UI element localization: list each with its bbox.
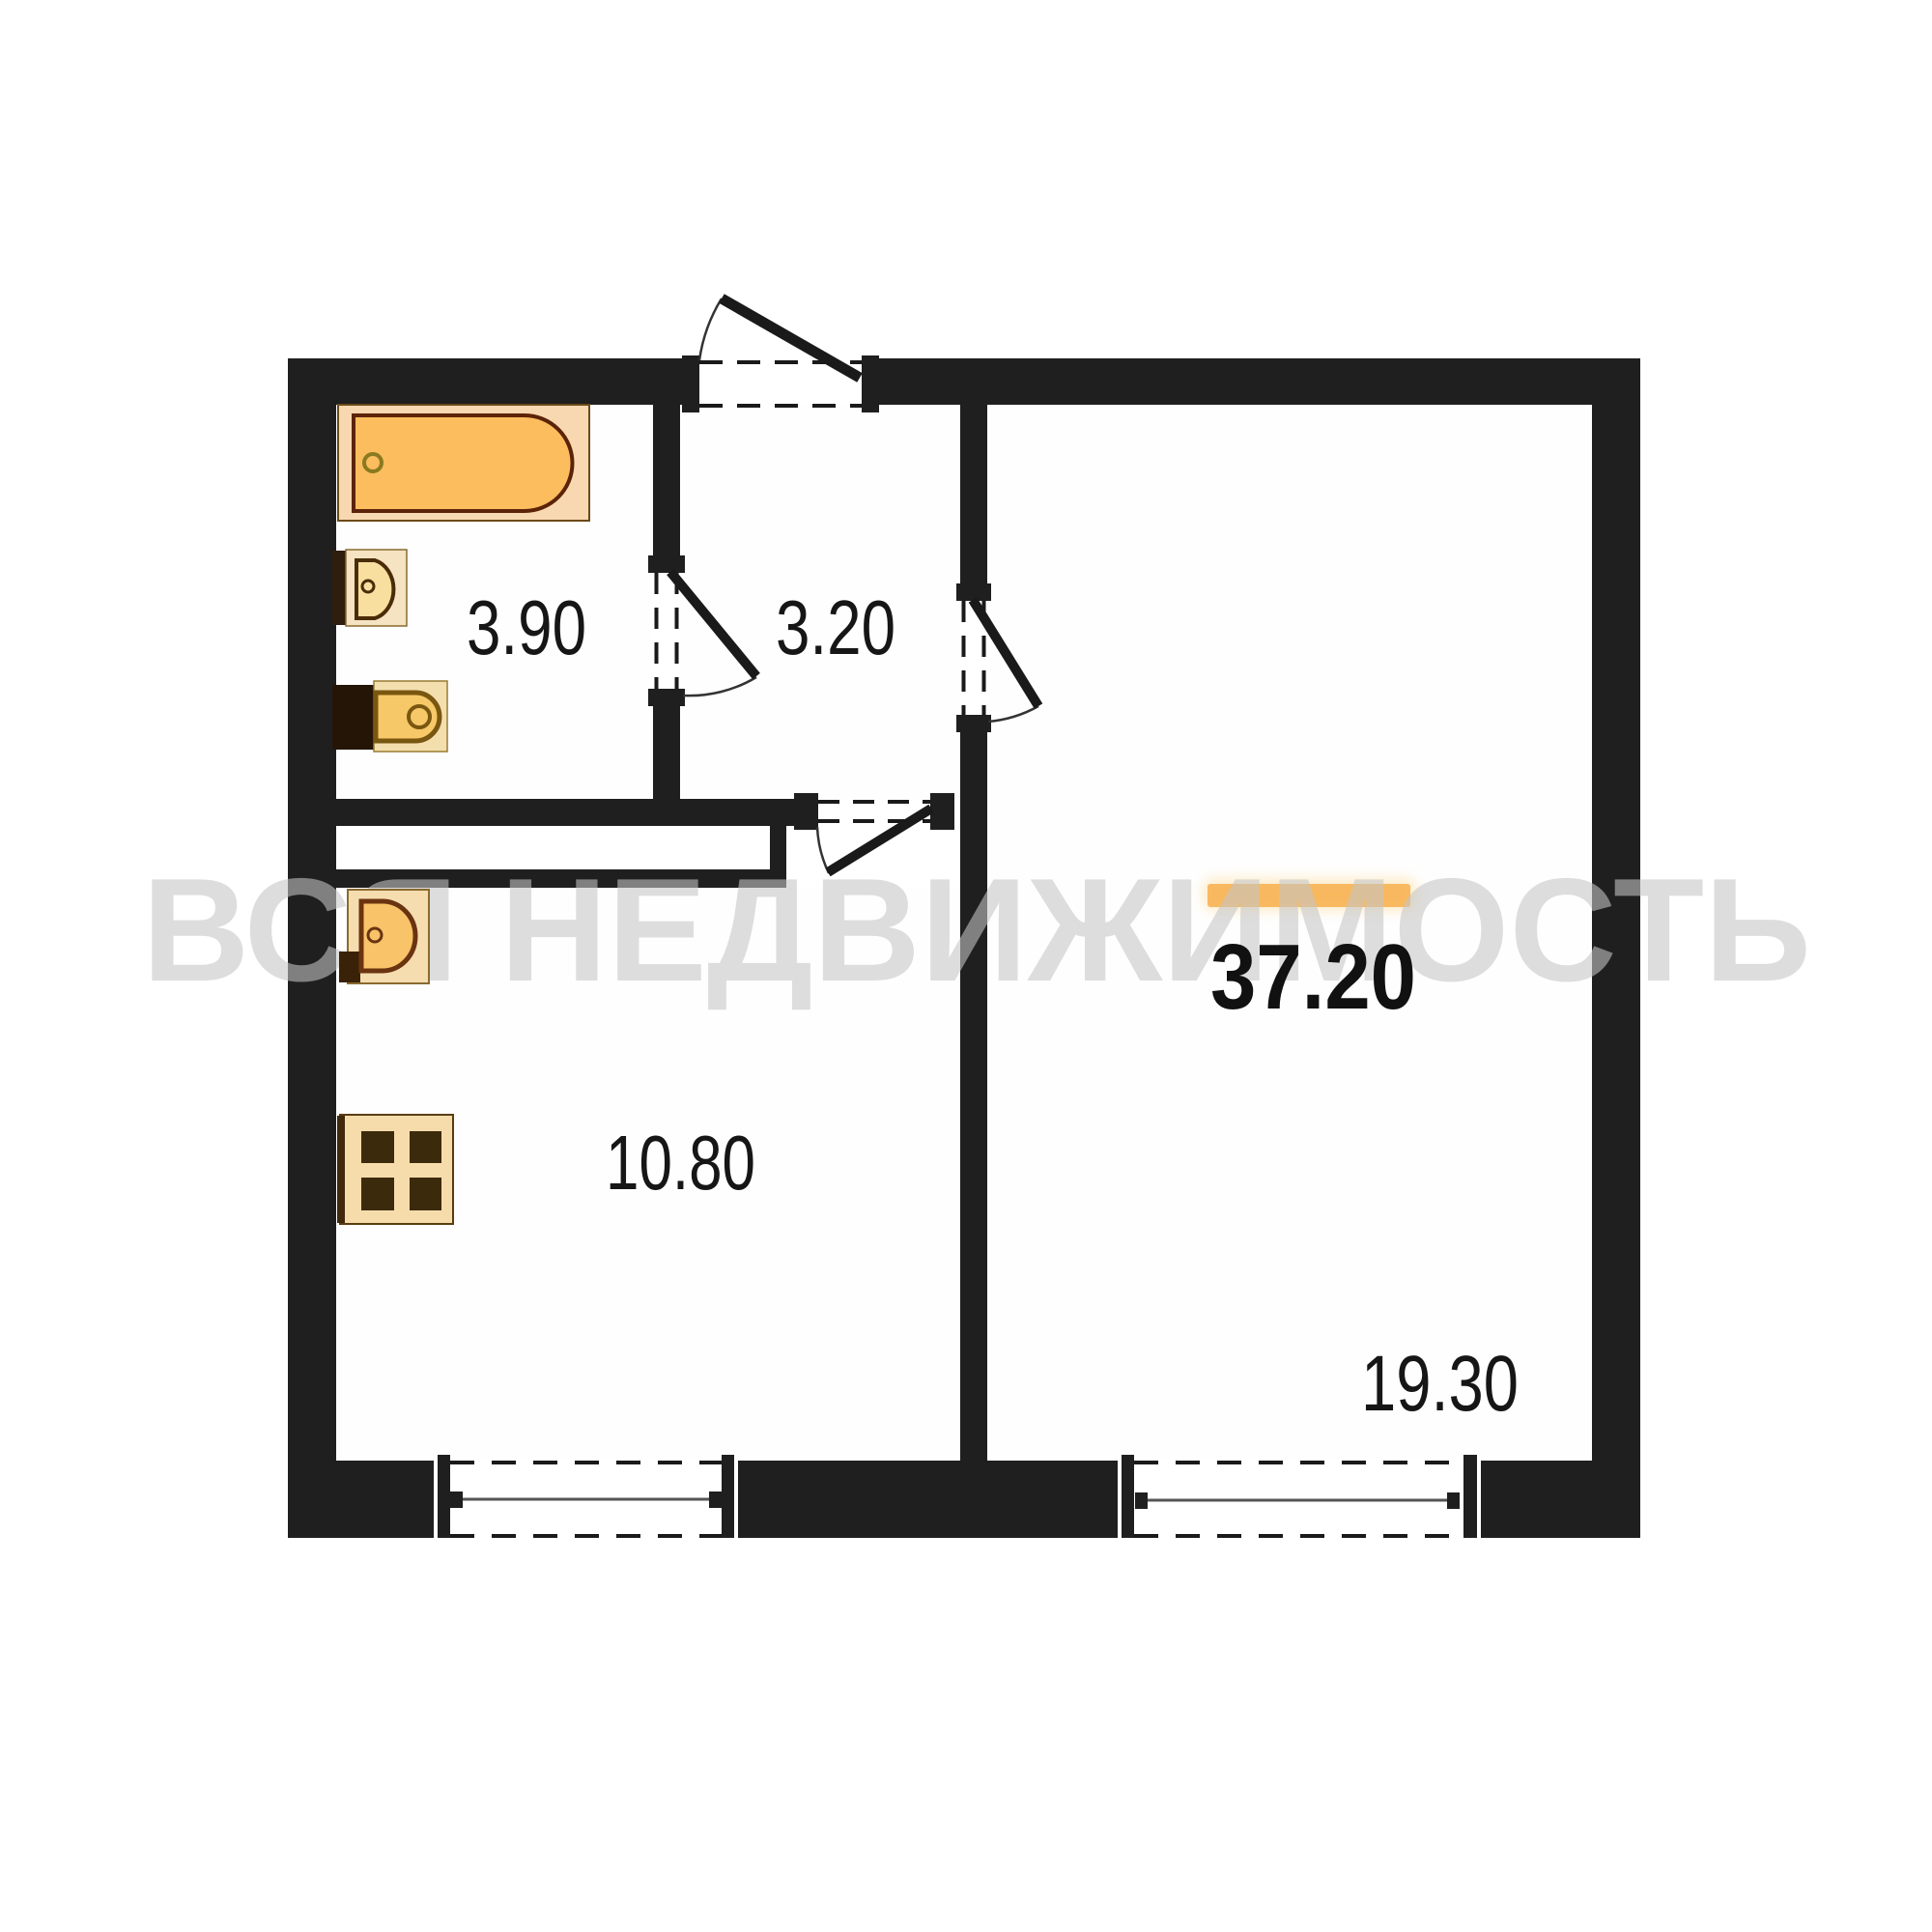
svg-text:37.20: 37.20: [1210, 925, 1416, 1029]
svg-text:10.80: 10.80: [606, 1120, 755, 1206]
svg-text:3.20: 3.20: [776, 584, 895, 670]
svg-text:3.90: 3.90: [467, 584, 586, 670]
svg-text:19.30: 19.30: [1361, 1340, 1519, 1428]
